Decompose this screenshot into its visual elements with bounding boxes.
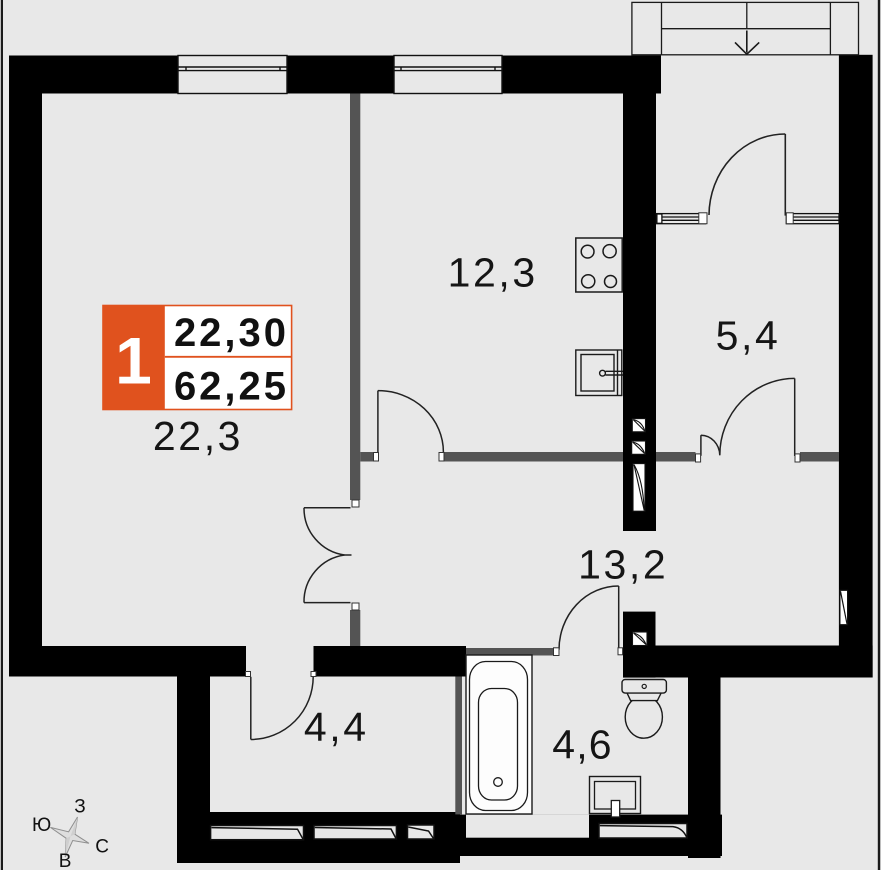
svg-text:4,6: 4,6 bbox=[552, 722, 613, 768]
svg-text:1: 1 bbox=[115, 323, 152, 397]
svg-text:Ю: Ю bbox=[32, 815, 51, 836]
svg-text:З: З bbox=[74, 797, 85, 818]
svg-text:62,25: 62,25 bbox=[174, 364, 289, 408]
svg-text:12,3: 12,3 bbox=[448, 250, 538, 296]
svg-text:В: В bbox=[59, 851, 72, 870]
svg-text:С: С bbox=[95, 836, 109, 857]
svg-text:4,4: 4,4 bbox=[304, 704, 369, 750]
svg-text:22,30: 22,30 bbox=[174, 311, 289, 355]
svg-text:13,2: 13,2 bbox=[578, 542, 668, 588]
svg-text:22,3: 22,3 bbox=[153, 413, 243, 459]
svg-text:5,4: 5,4 bbox=[716, 313, 781, 359]
